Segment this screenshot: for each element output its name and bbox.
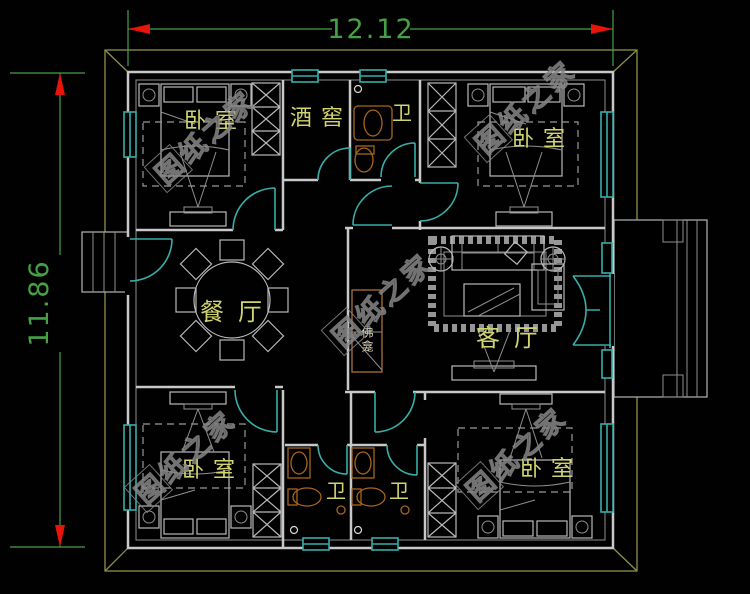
room-label-dining: 餐厅 [200,298,276,326]
dimension-height-label: 11.86 [24,259,55,346]
wardrobe-bl [253,464,281,537]
svg-text:图纸之家: 图纸之家 [149,84,263,191]
room-label-living: 客厅 [476,324,552,352]
bathroom-br-door [387,445,417,475]
main-entrance-double-door [573,273,614,348]
window-left-2 [124,425,136,510]
dimension-left: 11.86 [10,73,85,547]
wardrobe-tr [428,83,456,167]
bedroom-br-door [375,392,415,432]
wine-cellar-door [318,148,350,180]
wardrobe-tl [252,83,280,155]
window-door-side-1 [602,243,612,273]
room-label-bathroom-bl: 卫 [326,479,346,503]
window-door-side-2 [602,350,612,378]
window-bottom-2 [372,538,398,550]
window-top-2 [360,70,386,82]
dimension-top: 12.12 [128,10,613,66]
dimension-width-label: 12.12 [327,14,414,45]
floor-plan-canvas: 12.12 11.86 卧室 卧室 酒窖 卫 卧室 卧室 卫 卫 餐厅 客厅 佛… [0,0,750,594]
hall-living-door [353,186,392,225]
bathroom-top-door [381,143,415,177]
bedroom-tr-door [420,183,458,221]
window-right-1 [601,112,613,197]
window-left-1 [124,112,136,157]
watermark-5: 图纸之家 [455,399,574,511]
svg-text:图纸之家: 图纸之家 [326,247,440,354]
entry-porch-steps [82,232,128,292]
cad-floor-plan: 12.12 11.86 卧室 卧室 酒窖 卫 卧室 卧室 卫 卫 餐厅 客厅 佛… [0,0,750,594]
wardrobe-br [428,463,456,537]
room-label-bathroom-top: 卫 [392,101,412,125]
window-top-1 [292,70,318,82]
window-bottom-1 [303,538,329,550]
terrace-steps [614,220,707,397]
bedroom-bl-door [235,390,277,432]
sofa-set [429,236,565,380]
bathroom-bl-door [318,445,347,474]
window-right-2 [601,424,613,512]
entry-door-left [125,237,172,295]
room-label-bathroom-br: 卫 [389,479,409,503]
room-label-wine-cellar: 酒窖 [290,106,352,131]
bedroom-tl-door [233,188,275,230]
